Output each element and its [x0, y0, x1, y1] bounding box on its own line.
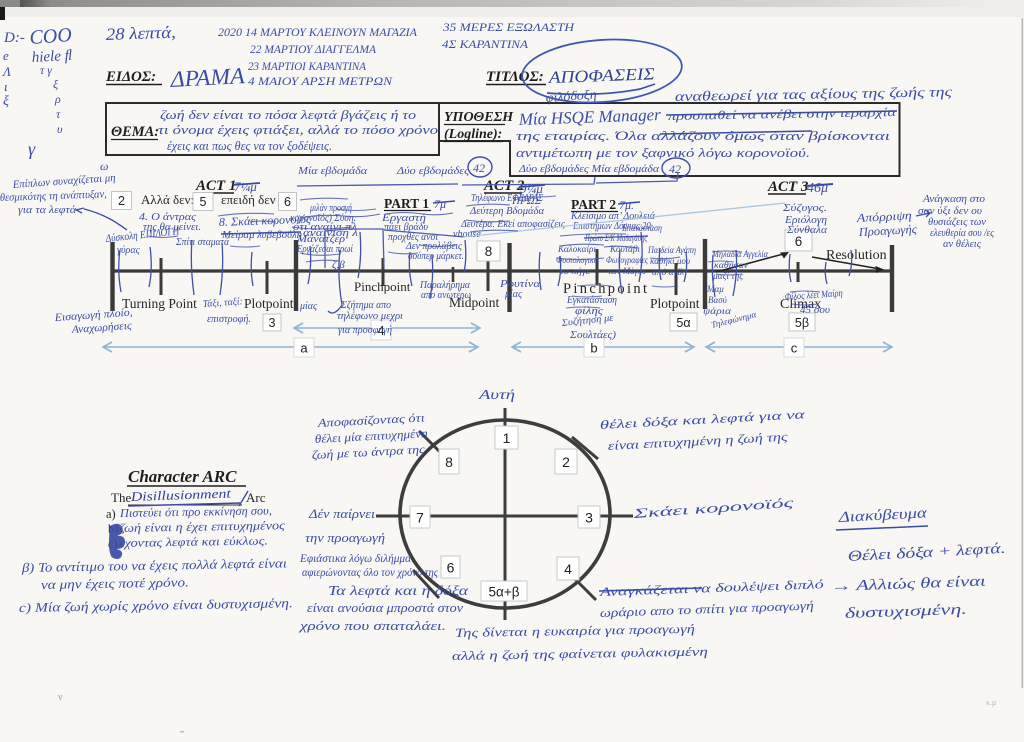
svg-text:ΤΙΤΛΟΣ:: ΤΙΤΛΟΣ:	[486, 69, 544, 85]
svg-text:Πιστεύει ότι προ εκκίνηση σου,: Πιστεύει ότι προ εκκίνηση σου,	[119, 503, 272, 520]
svg-text:42: 42	[473, 161, 485, 175]
svg-text:επιστροφή.: επιστροφή.	[207, 314, 251, 325]
svg-text:28 λεπτά,: 28 λεπτά,	[105, 23, 176, 44]
svg-text:ζωή δεν είναι το πόσα λεφτά βγ: ζωή δεν είναι το πόσα λεφτά βγάζεις ή το	[160, 107, 417, 122]
svg-text:Ανάγκαση στο: Ανάγκαση στο	[922, 193, 986, 205]
svg-text:Κουτάβι: Κουτάβι	[609, 244, 641, 254]
svg-text:Λ: Λ	[1, 64, 11, 79]
svg-text:ζωή είναι η έχει επιτυχημένος: ζωή είναι η έχει επιτυχημένος	[119, 518, 285, 535]
svg-text:5: 5	[200, 195, 207, 209]
svg-text:να μην έχεις ποτέ χρόνο.: να μην έχεις ποτέ χρόνο.	[41, 574, 189, 592]
svg-text:Εφιάστικα λόγω διλήμμα: Εφιάστικα λόγω διλήμμα	[299, 551, 412, 565]
svg-text:μίας: μίας	[504, 289, 523, 300]
svg-text:hiele ﬂ: hiele ﬂ	[31, 48, 73, 66]
svg-text:της εταιρίας. Όλα αλλάζουν όμω: της εταιρίας. Όλα αλλάζουν όμως όταν βρί…	[516, 128, 891, 143]
svg-text:Turning Point: Turning Point	[122, 296, 197, 311]
svg-text:6: 6	[447, 560, 455, 576]
svg-text:χρόνο που σπαταλάει.: χρόνο που σπαταλάει.	[297, 618, 446, 633]
svg-text:Σζήτημα απο: Σζήτημα απο	[340, 300, 391, 311]
svg-text:PART 1: PART 1	[384, 196, 429, 211]
svg-text:τηλέφωνο μεχρι: τηλέφωνο μεχρι	[337, 311, 403, 322]
svg-text:μίας: μίας	[299, 301, 318, 312]
svg-text:Επανάσταση: Επανάσταση	[621, 223, 662, 233]
svg-text:Τα λεφτά και η δόξα: Τα λεφτά και η δόξα	[328, 584, 469, 599]
svg-text:3: 3	[585, 510, 593, 526]
svg-text:Plotpoint: Plotpoint	[244, 296, 294, 311]
svg-text:έχεις και πως θες να τον ξοδέψ: έχεις και πως θες να τον ξοδέψεις.	[167, 138, 332, 153]
svg-text:ΕΙΔΟΣ:: ΕΙΔΟΣ:	[105, 69, 156, 85]
svg-text:επειδή δεν: επειδή δεν	[221, 192, 276, 207]
svg-text:την προαγωγή: την προαγωγή	[305, 530, 385, 545]
svg-text:7: 7	[416, 510, 424, 526]
svg-text:7μ.: 7μ.	[619, 198, 634, 212]
svg-text:46μ: 46μ	[807, 181, 828, 196]
svg-text:ΥΠΟΘΕΣΗ: ΥΠΟΘΕΣΗ	[444, 110, 514, 125]
svg-text:4 ΜΑΙΟΥ ΑΡΣΗ ΜΕΤΡΩΝ: 4 ΜΑΙΟΥ ΑΡΣΗ ΜΕΤΡΩΝ	[248, 74, 393, 88]
svg-text:4Σ ΚΑΡΑΝΤΙΝΑ: 4Σ ΚΑΡΑΝΤΙΝΑ	[442, 37, 529, 51]
svg-text:Μηλαδία Αγγελία: Μηλαδία Αγγελία	[711, 249, 768, 259]
svg-text:Δέν παίρνει: Δέν παίρνει	[308, 506, 376, 521]
svg-text:ρ: ρ	[54, 92, 61, 106]
svg-text:Σύνθαλα: Σύνθαλα	[786, 225, 828, 236]
svg-text:3: 3	[269, 316, 276, 330]
svg-text:2: 2	[562, 454, 570, 470]
svg-text:Αυτή: Αυτή	[478, 388, 515, 403]
svg-text:ψάρια: ψάρια	[703, 306, 731, 316]
svg-text:4: 4	[564, 561, 572, 577]
svg-text:Σύζυγος.: Σύζυγος.	[782, 202, 827, 214]
svg-text:για προσφυγή: για προσφυγή	[338, 325, 392, 336]
svg-text:7¼μ: 7¼μ	[234, 179, 257, 194]
svg-text:ω: ω	[100, 159, 108, 173]
svg-text:Character ARC: Character ARC	[128, 467, 237, 486]
svg-text:5α: 5α	[676, 316, 690, 330]
svg-text:e: e	[3, 48, 9, 63]
svg-text:Plotpoint: Plotpoint	[650, 296, 700, 311]
svg-text:c: c	[791, 341, 798, 356]
svg-text:35 ΜΕΡΕΣ ΕΞΩΛΑΣΤΗ: 35 ΜΕΡΕΣ ΕΞΩΛΑΣΤΗ	[442, 20, 576, 34]
svg-text:από αγίλ: από αγίλ	[652, 267, 684, 277]
svg-text:42: 42	[669, 162, 681, 176]
svg-text:ACT 2: ACT 2	[483, 178, 525, 194]
svg-text:απο ανωτέρω: απο ανωτέρω	[421, 290, 471, 301]
svg-text:2020 14 ΜΑΡΤΟΥ ΚΛΕΙΝΟΥΝ ΜΑΓΑΖΙ: 2020 14 ΜΑΡΤΟΥ ΚΛΕΙΝΟΥΝ ΜΑΓΑΖΙΑ	[218, 25, 418, 39]
svg-text:5β: 5β	[795, 316, 809, 330]
svg-text:D:-: D:-	[3, 30, 25, 46]
svg-text:Pinchpoint: Pinchpoint	[354, 279, 411, 294]
svg-text:Μία εβδομάδα: Μία εβδομάδα	[297, 165, 367, 177]
svg-text:PART 2: PART 2	[571, 197, 616, 212]
svg-text:Αλλά δεν:: Αλλά δεν:	[141, 192, 194, 207]
svg-text:είναι ανούσια μπροστά στον: είναι ανούσια μπροστά στον	[307, 600, 463, 615]
svg-text:Βασύ: Βασύ	[708, 295, 727, 305]
svg-text:για τα λεφτά: για τα λεφτά	[18, 204, 76, 216]
svg-text:(Logline):: (Logline):	[444, 127, 502, 142]
svg-text:καθήκι μου: καθήκι μου	[650, 256, 690, 266]
svg-text:22 ΜΑΡΤΙΟΥ ΔΙΑΓΓΕΛΜΑ: 22 ΜΑΡΤΙΟΥ ΔΙΑΓΓΕΛΜΑ	[250, 42, 377, 56]
svg-text:ν: ν	[58, 692, 63, 703]
svg-text:αν θέλεις: αν θέλεις	[943, 239, 982, 250]
svg-text:8: 8	[445, 454, 453, 470]
svg-text:5α+β: 5α+β	[489, 585, 520, 600]
svg-text:γ: γ	[28, 139, 36, 159]
svg-text:τ γ: τ γ	[40, 63, 52, 77]
svg-text:σαν ύξι δεν ου: σαν ύξι δεν ου	[918, 206, 982, 217]
svg-text:a: a	[300, 341, 308, 356]
svg-text:ΑΠΟΦΑΣΕΙΣ: ΑΠΟΦΑΣΕΙΣ	[547, 64, 655, 87]
svg-text:ACT 3: ACT 3	[767, 179, 809, 195]
svg-text:τ: τ	[56, 107, 61, 121]
svg-text:τι όνομα έχεις φτιάξει, αλλά τ: τι όνομα έχεις φτιάξει, αλλά το πόσο χρό…	[158, 122, 439, 137]
svg-text:Μαμ: Μαμ	[706, 284, 724, 294]
svg-text:μαζί της: μαζί της	[712, 271, 743, 281]
svg-text:45 σου: 45 σου	[800, 305, 830, 316]
svg-text:COO: COO	[29, 24, 73, 49]
svg-text:a): a)	[106, 507, 116, 521]
svg-text:Παιδεία Αγάπη: Παιδεία Αγάπη	[647, 245, 696, 255]
svg-text:23 ΜΑΡΤΙΟΙ ΚΑΡΑΝΤΙΝΑ: 23 ΜΑΡΤΙΟΙ ΚΑΡΑΝΤΙΝΑ	[248, 59, 367, 73]
svg-text:ξ: ξ	[3, 94, 9, 109]
svg-text:κ.μ: κ.μ	[986, 698, 996, 707]
svg-text:ελευθερία σου /ες: ελευθερία σου /ες	[930, 228, 995, 239]
svg-text:έχοντας λεφτά και εύκλως.: έχοντας λεφτά και εύκλως.	[119, 533, 268, 550]
svg-text:Σουλτάες): Σουλτάες)	[569, 330, 617, 341]
svg-text:2: 2	[118, 194, 125, 208]
svg-text:8: 8	[485, 244, 493, 259]
svg-text:θυσιάζεις των: θυσιάζεις των	[928, 217, 987, 228]
svg-text:Τηλέφωνο ΕΦΕΔΡΑΣ: Τηλέφωνο ΕΦΕΔΡΑΣ	[471, 193, 543, 204]
svg-text:The: The	[111, 490, 131, 505]
svg-text:1: 1	[503, 430, 511, 446]
svg-text:υ: υ	[57, 122, 63, 136]
svg-text:7μ: 7μ	[434, 197, 446, 211]
svg-text:6: 6	[284, 195, 291, 209]
svg-text:Δεύτερη Βδομάδα: Δεύτερη Βδομάδα	[469, 205, 544, 217]
svg-text:το πήγε: το πήγε	[560, 266, 591, 276]
svg-text:ι: ι	[4, 79, 8, 94]
svg-text:6: 6	[795, 234, 803, 249]
svg-text:ΔΡΑΜΑ: ΔΡΑΜΑ	[169, 63, 246, 92]
svg-text:αφιερώνοντας όλο τον χρόνο της: αφιερώνοντας όλο τον χρόνο της	[302, 565, 438, 579]
svg-text:ξ: ξ	[53, 77, 59, 91]
svg-text:ΘΕΜΑ:: ΘΕΜΑ:	[111, 124, 159, 140]
svg-text:b: b	[590, 341, 597, 356]
svg-text:Δύο εβδομάδες: Δύο εβδομάδες	[396, 165, 470, 177]
svg-text:αντιμέτωπη με τον ξαφνικό λόγω: αντιμέτωπη με τον ξαφνικό λόγω κορονοϊού…	[516, 145, 810, 160]
svg-text:Δύο εβδομάδες Μία εβδομάδα: Δύο εβδομάδες Μία εβδομάδα	[518, 163, 659, 175]
